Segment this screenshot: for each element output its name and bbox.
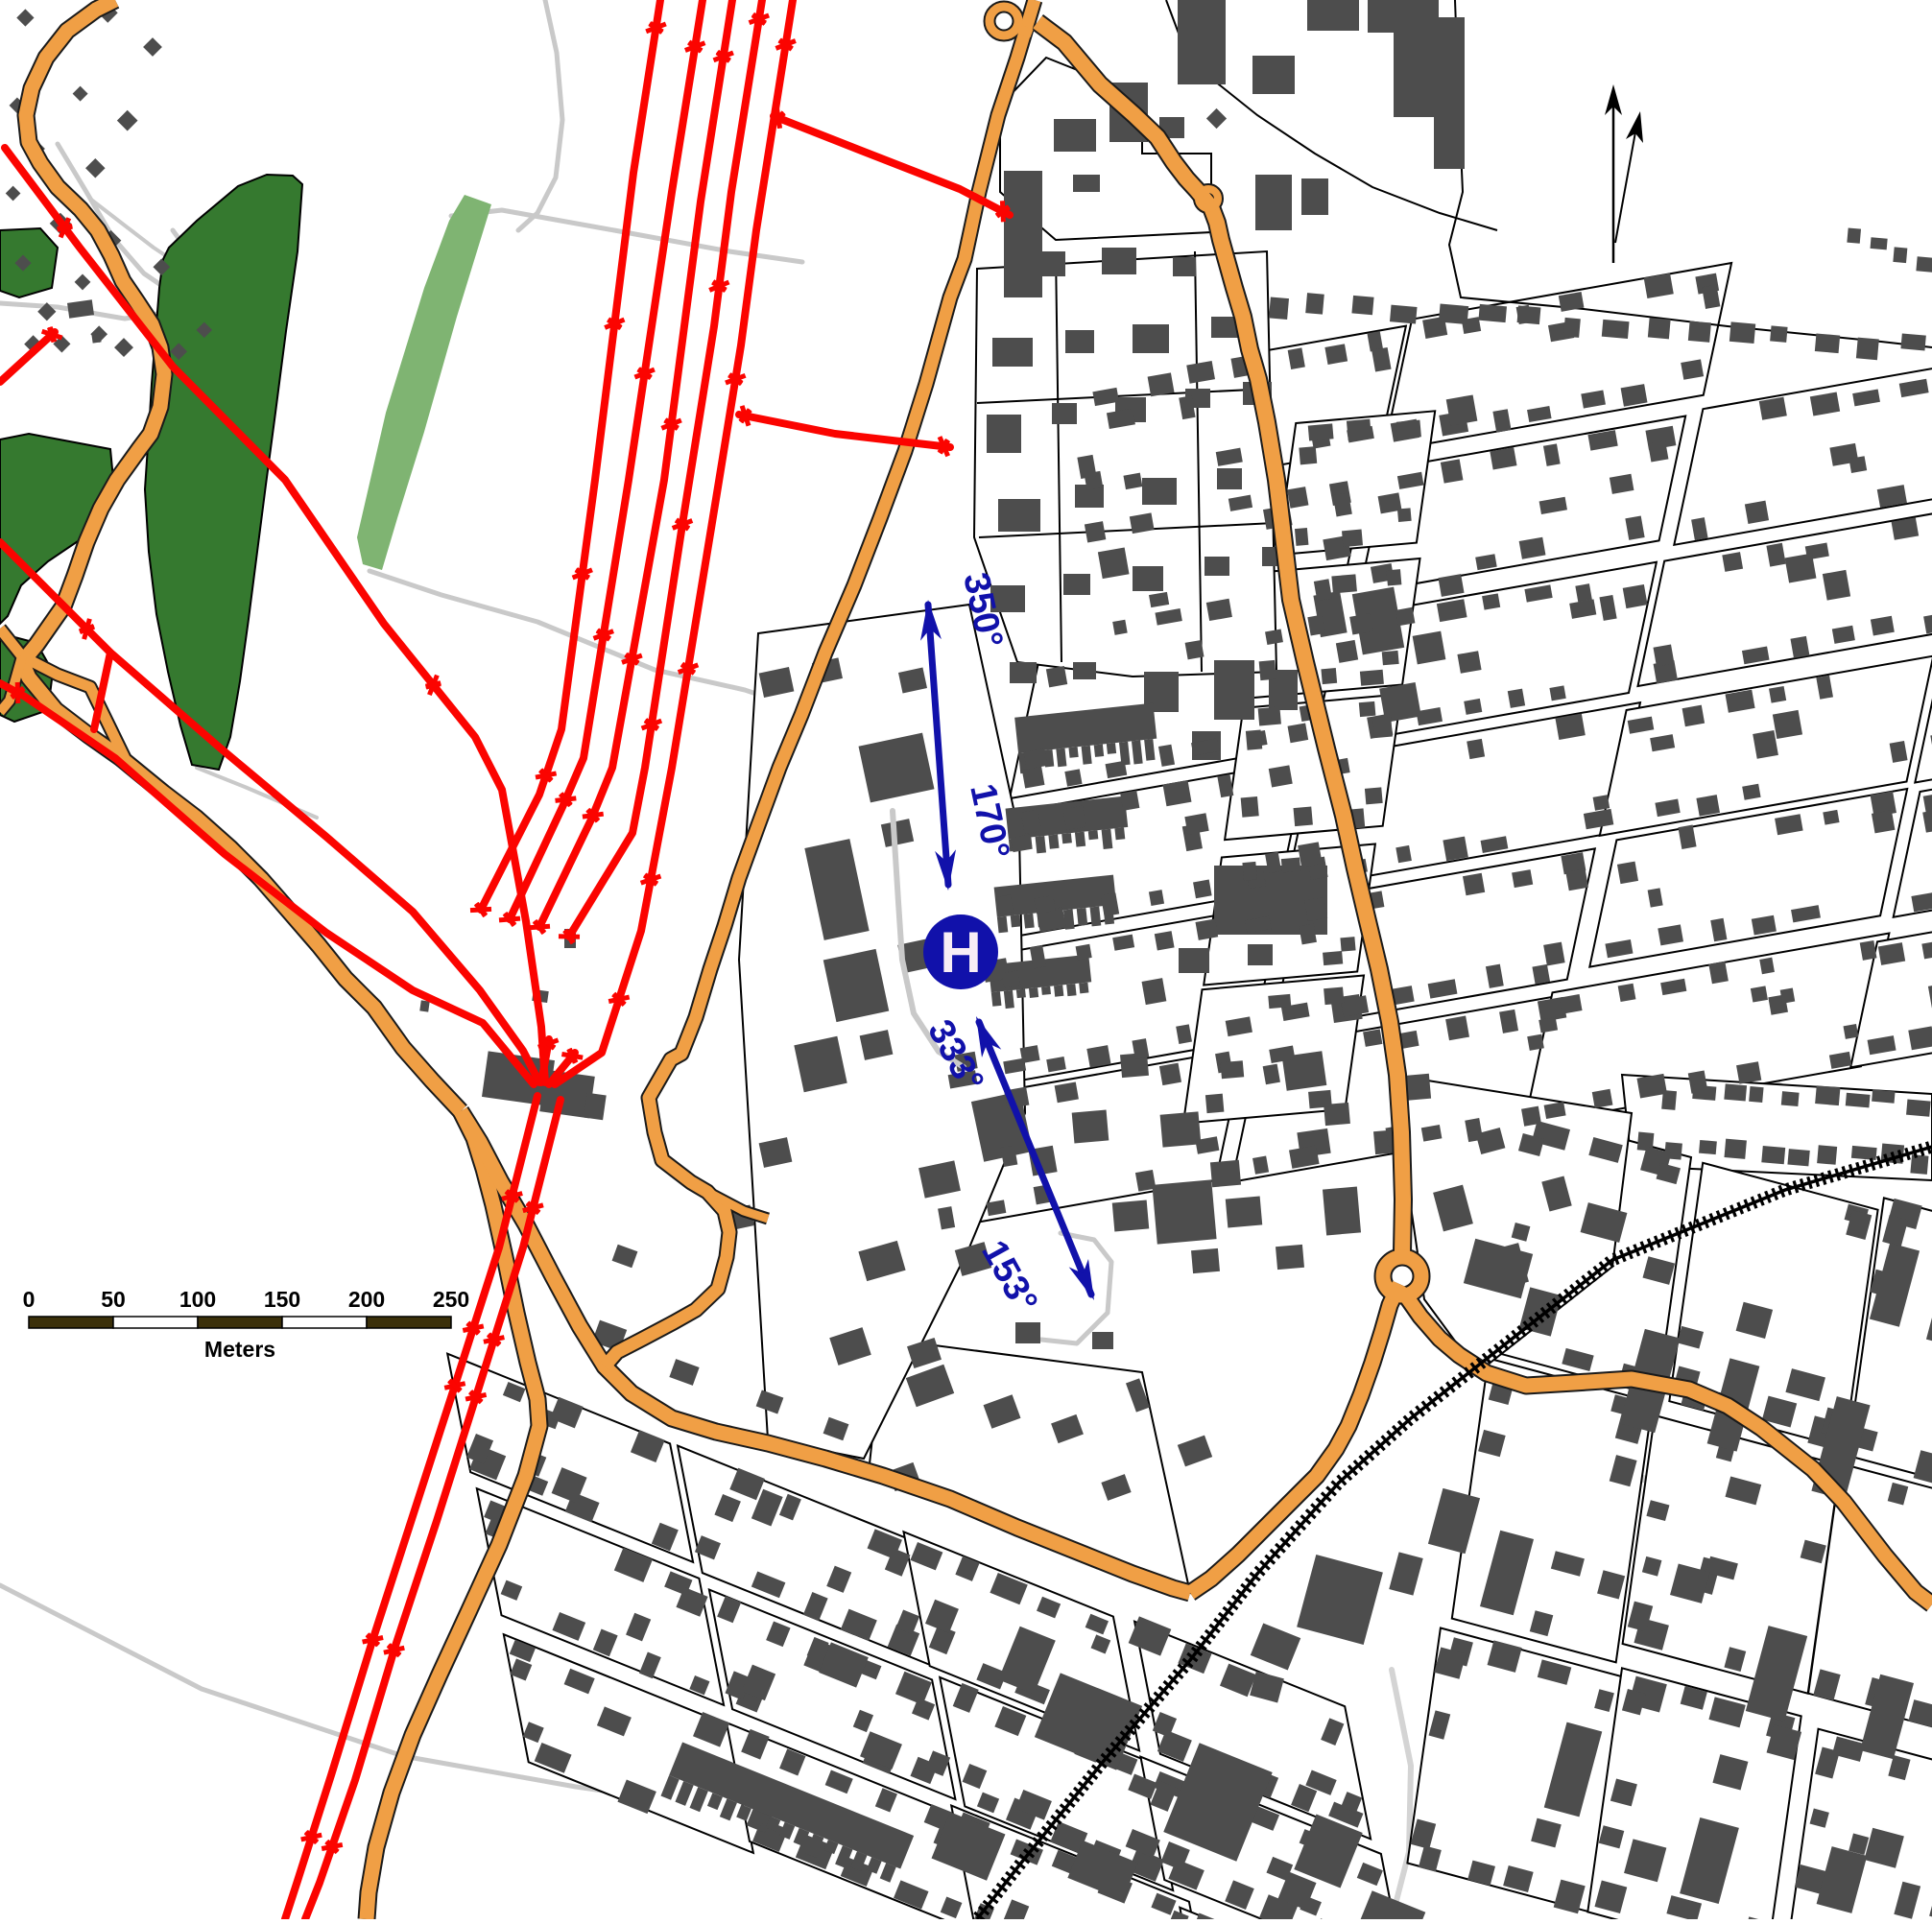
svg-text:Meters: Meters <box>204 1337 275 1362</box>
svg-text:250: 250 <box>433 1287 469 1312</box>
svg-text:200: 200 <box>348 1287 385 1312</box>
svg-text:100: 100 <box>179 1287 216 1312</box>
svg-text:H: H <box>940 920 981 985</box>
svg-text:50: 50 <box>101 1287 126 1312</box>
svg-text:150: 150 <box>264 1287 300 1312</box>
svg-text:0: 0 <box>23 1287 36 1312</box>
